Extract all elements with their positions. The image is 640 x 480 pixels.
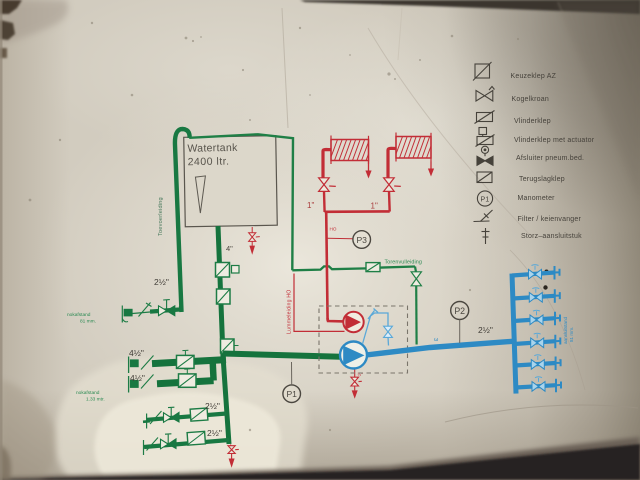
svg-text:4½": 4½": [130, 373, 145, 383]
svg-text:Storz–aansluitstuk: Storz–aansluitstuk: [521, 233, 582, 240]
svg-text:Watertank: Watertank: [187, 142, 238, 155]
svg-text:P1: P1: [286, 389, 297, 399]
svg-text:1": 1": [371, 202, 378, 211]
svg-text:Vlinderklep met actuator: Vlinderklep met actuator: [514, 137, 595, 144]
svg-text:Manometer: Manometer: [518, 195, 556, 202]
svg-text:Lummeleiding HO: Lummeleiding HO: [287, 289, 293, 334]
svg-text:aansluitstand: aansluitstand: [563, 316, 568, 344]
svg-text:ω: ω: [434, 337, 439, 343]
svg-text:Kogelkroan: Kogelkroan: [512, 96, 549, 103]
svg-text:2400 ltr.: 2400 ltr.: [188, 156, 230, 169]
svg-text:4": 4": [226, 244, 233, 253]
svg-text:Vlinderklep: Vlinderklep: [514, 118, 551, 125]
svg-text:2½": 2½": [154, 277, 169, 287]
svg-text:P2: P2: [454, 306, 465, 316]
svg-text:81 mm.: 81 mm.: [569, 327, 574, 342]
svg-text:Filter / keienvanger: Filter / keienvanger: [518, 216, 582, 223]
svg-text:Afsluiter pneum.bed.: Afsluiter pneum.bed.: [516, 155, 584, 162]
svg-text:P3: P3: [356, 235, 367, 245]
svg-text:nokafstand: nokafstand: [67, 312, 91, 318]
svg-text:HO: HO: [330, 227, 337, 232]
svg-text:Terugslagklep: Terugslagklep: [519, 176, 565, 183]
svg-text:1": 1": [307, 201, 314, 210]
svg-text:Keuzeklep AZ: Keuzeklep AZ: [511, 73, 557, 80]
svg-text:2½": 2½": [205, 401, 220, 411]
svg-text:2½": 2½": [478, 325, 493, 335]
svg-text:4½": 4½": [129, 348, 144, 358]
svg-text:81 mm.: 81 mm.: [80, 319, 96, 325]
svg-text:nokafstand: nokafstand: [76, 390, 100, 396]
svg-text:Torenvulleiding: Torenvulleiding: [385, 260, 422, 266]
svg-text:1.33 mtr.: 1.33 mtr.: [86, 397, 105, 403]
svg-text:P1: P1: [481, 197, 490, 204]
svg-text:2½": 2½": [207, 428, 222, 438]
svg-text:Toevoerleiding: Toevoerleiding: [158, 197, 164, 236]
